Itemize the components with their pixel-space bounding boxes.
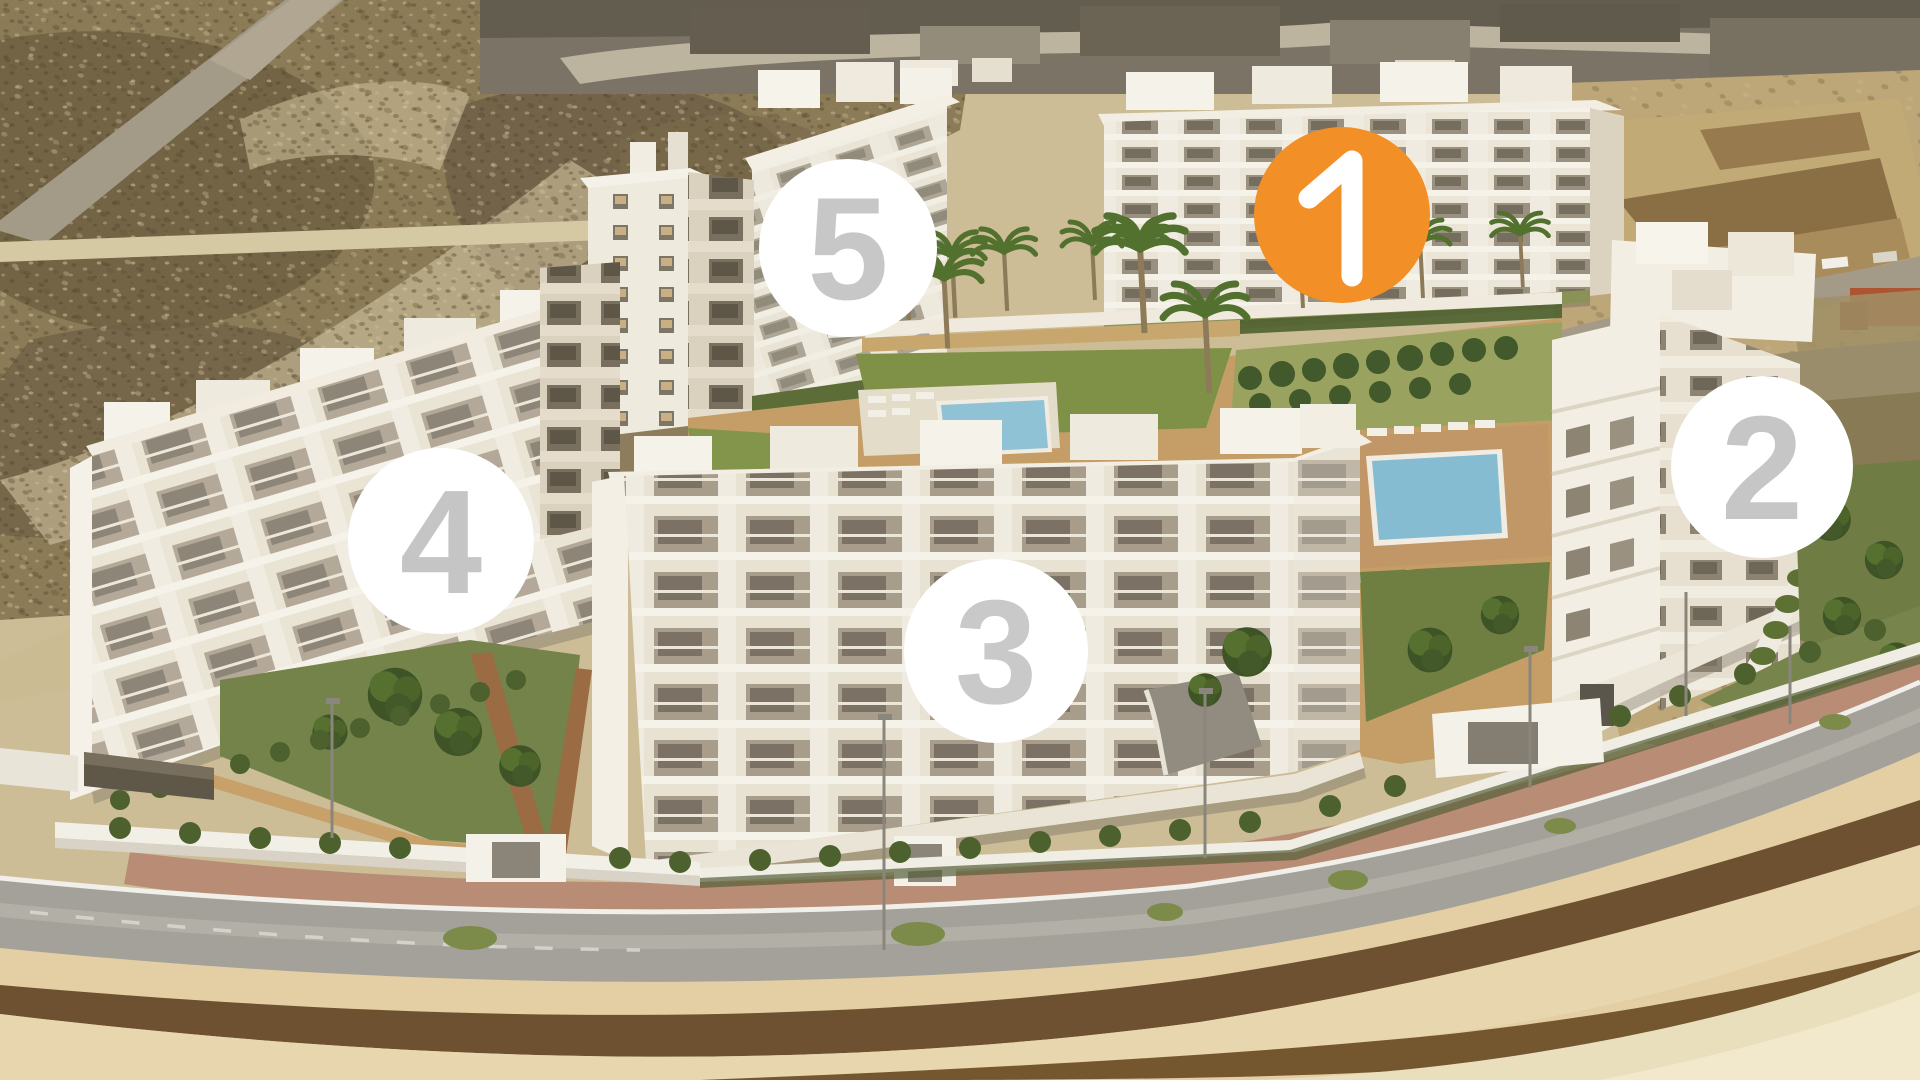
svg-text:4: 4 <box>400 460 482 625</box>
svg-text:5: 5 <box>807 167 888 330</box>
svg-text:3: 3 <box>955 570 1037 735</box>
svg-text:2: 2 <box>1721 386 1803 551</box>
